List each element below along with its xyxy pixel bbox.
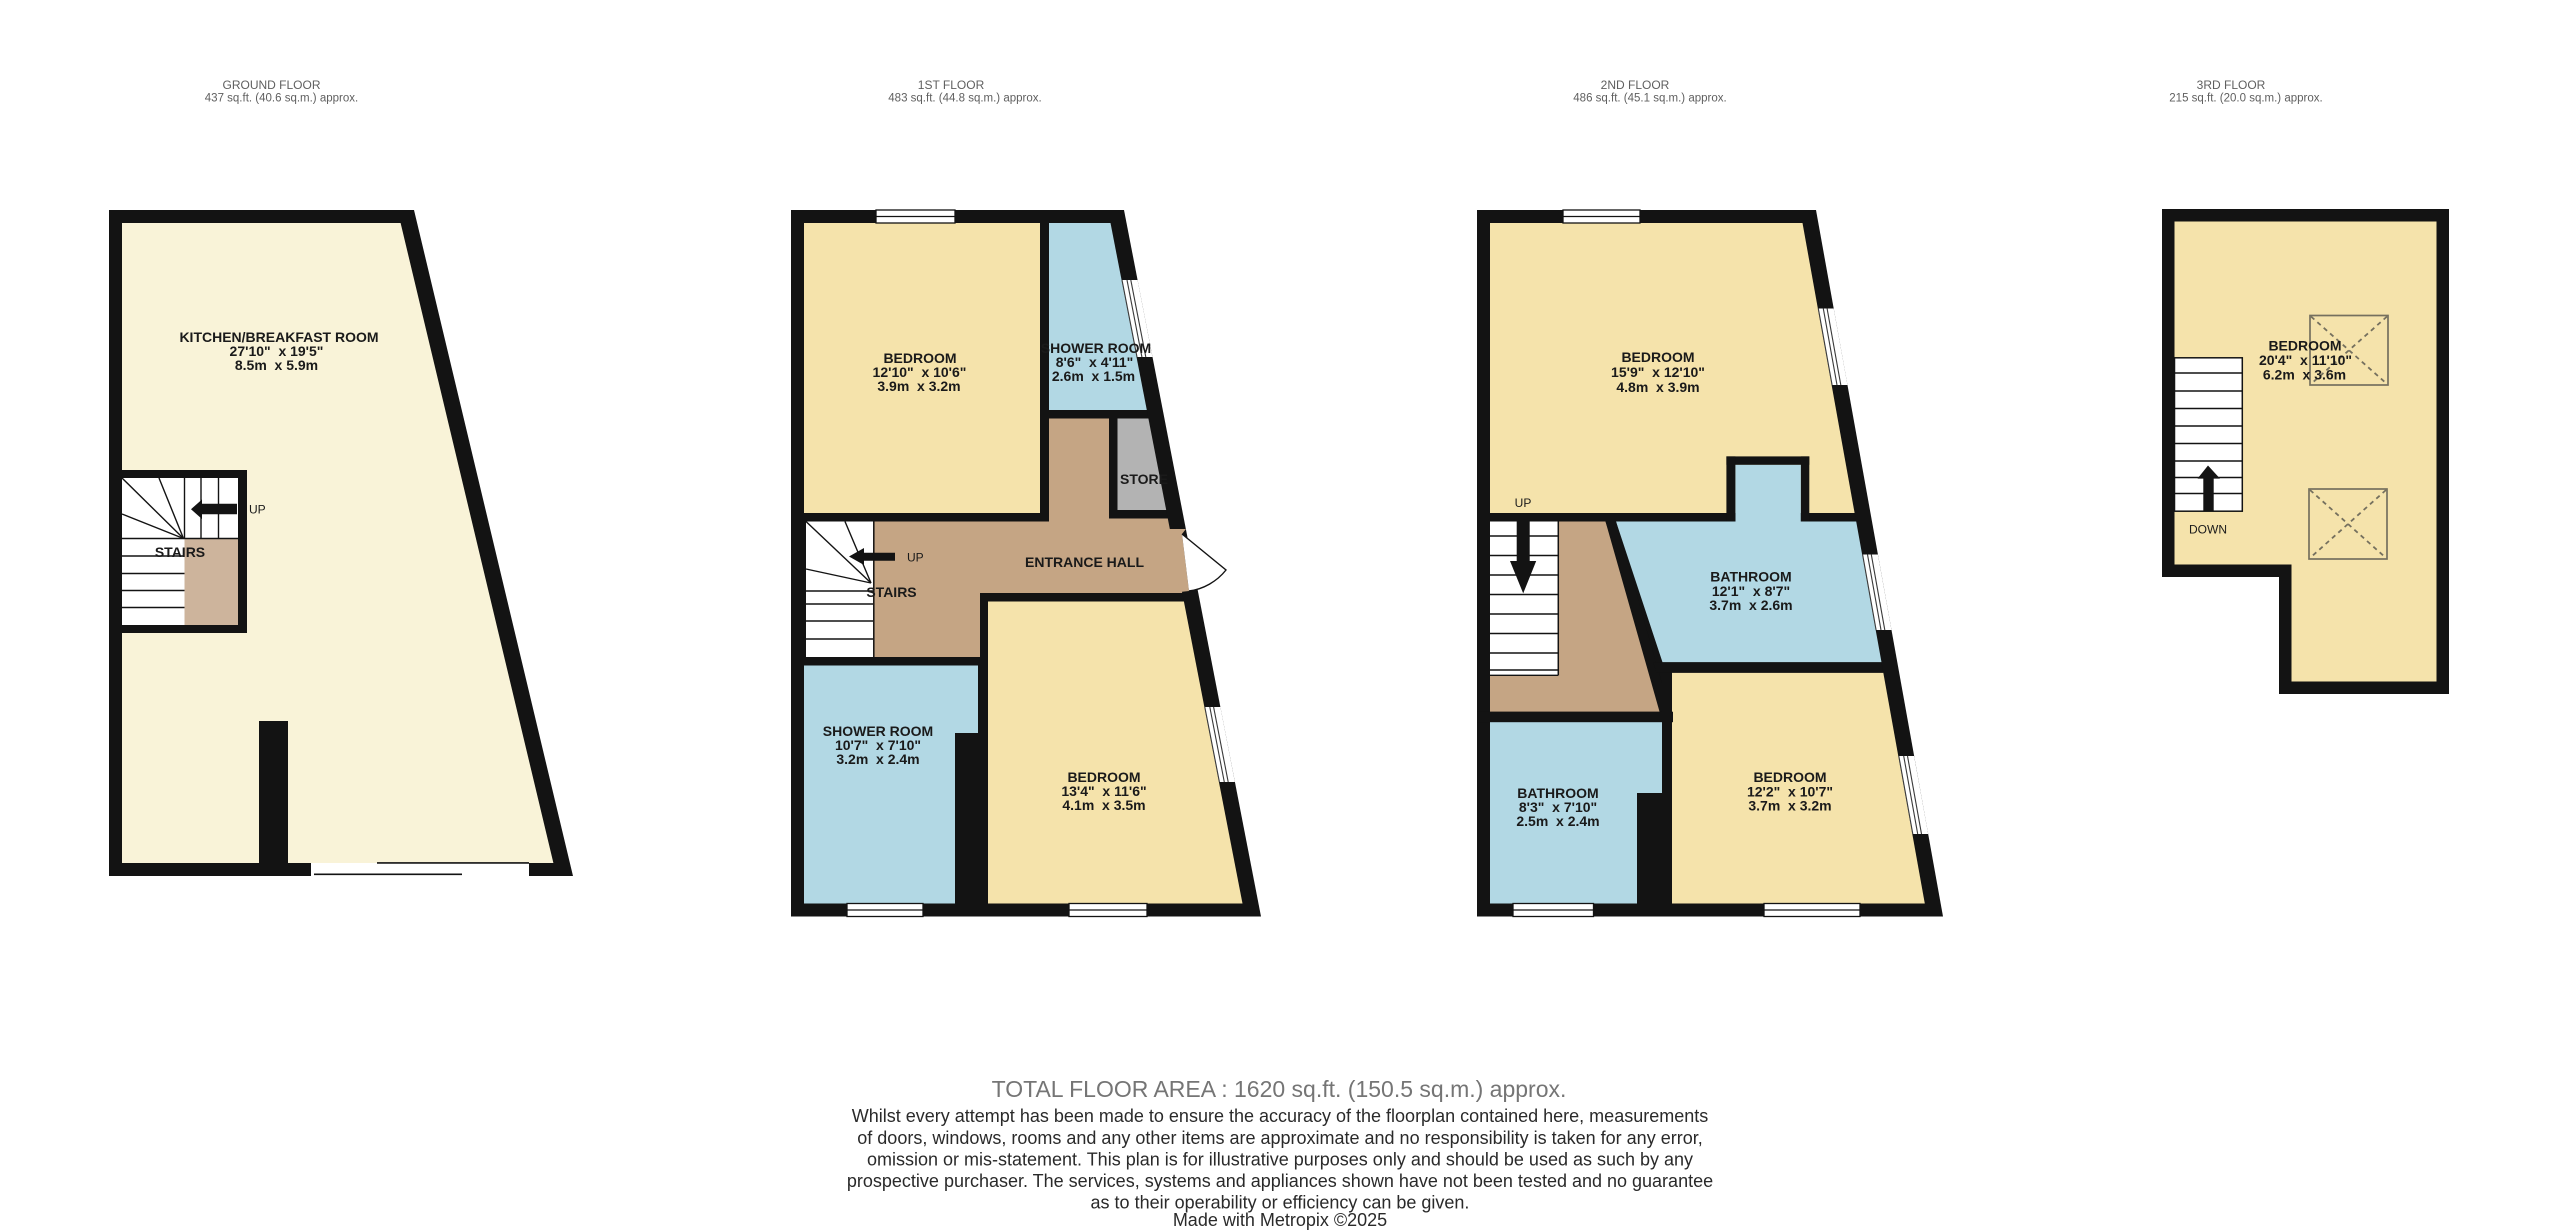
- svg-text:ENTRANCE HALL: ENTRANCE HALL: [1025, 554, 1144, 570]
- svg-text:483 sq.ft. (44.8 sq.m.) approx: 483 sq.ft. (44.8 sq.m.) approx.: [888, 93, 1041, 105]
- svg-text:UP: UP: [1515, 496, 1532, 510]
- svg-text:Whilst every attempt has been: Whilst every attempt has been made to en…: [852, 1106, 1708, 1126]
- svg-text:omission or mis-statement. Thi: omission or mis-statement. This plan is …: [867, 1149, 1693, 1169]
- svg-text:of doors, windows, rooms and a: of doors, windows, rooms and any other i…: [857, 1128, 1702, 1148]
- svg-text:215 sq.ft. (20.0 sq.m.) approx: 215 sq.ft. (20.0 sq.m.) approx.: [2169, 93, 2322, 105]
- svg-text:GROUND FLOOR: GROUND FLOOR: [222, 78, 320, 92]
- svg-text:Made with Metropix ©2025: Made with Metropix ©2025: [1173, 1210, 1387, 1230]
- svg-text:prospective purchaser. The ser: prospective purchaser. The services, sys…: [847, 1171, 1713, 1191]
- svg-text:DOWN: DOWN: [2189, 523, 2227, 537]
- svg-text:3RD FLOOR: 3RD FLOOR: [2197, 78, 2266, 92]
- svg-text:1ST FLOOR: 1ST FLOOR: [918, 78, 985, 92]
- svg-text:STAIRS: STAIRS: [866, 584, 916, 600]
- svg-text:486 sq.ft. (45.1 sq.m.) approx: 486 sq.ft. (45.1 sq.m.) approx.: [1573, 93, 1726, 105]
- svg-text:437 sq.ft. (40.6 sq.m.) approx: 437 sq.ft. (40.6 sq.m.) approx.: [205, 93, 358, 105]
- svg-text:UP: UP: [249, 503, 266, 517]
- svg-text:3.2m x 2.4m: 3.2m x 2.4m: [836, 751, 919, 767]
- svg-text:BEDROOM: BEDROOM: [1621, 349, 1694, 365]
- svg-text:3.9m x 3.2m: 3.9m x 3.2m: [877, 378, 960, 394]
- svg-text:STAIRS: STAIRS: [155, 544, 205, 560]
- svg-text:6.2m x 3.6m: 6.2m x 3.6m: [2263, 367, 2346, 383]
- svg-text:3.7m x 2.6m: 3.7m x 2.6m: [1709, 597, 1792, 613]
- svg-text:4.8m x 3.9m: 4.8m x 3.9m: [1616, 379, 1699, 395]
- svg-text:UP: UP: [907, 551, 924, 565]
- svg-text:2.5m x 2.4m: 2.5m x 2.4m: [1516, 813, 1599, 829]
- svg-text:3.7m x 3.2m: 3.7m x 3.2m: [1748, 798, 1831, 814]
- svg-text:2.6m x 1.5m: 2.6m x 1.5m: [1052, 368, 1135, 384]
- svg-text:15'9" x 12'10": 15'9" x 12'10": [1611, 364, 1705, 380]
- svg-text:TOTAL FLOOR AREA : 1620 sq.ft.: TOTAL FLOOR AREA : 1620 sq.ft. (150.5 sq…: [992, 1076, 1567, 1102]
- svg-text:STORE: STORE: [1120, 471, 1168, 487]
- svg-text:8.5m x 5.9m: 8.5m x 5.9m: [235, 357, 318, 373]
- svg-text:2ND FLOOR: 2ND FLOOR: [1601, 78, 1670, 92]
- svg-text:4.1m x 3.5m: 4.1m x 3.5m: [1062, 797, 1145, 813]
